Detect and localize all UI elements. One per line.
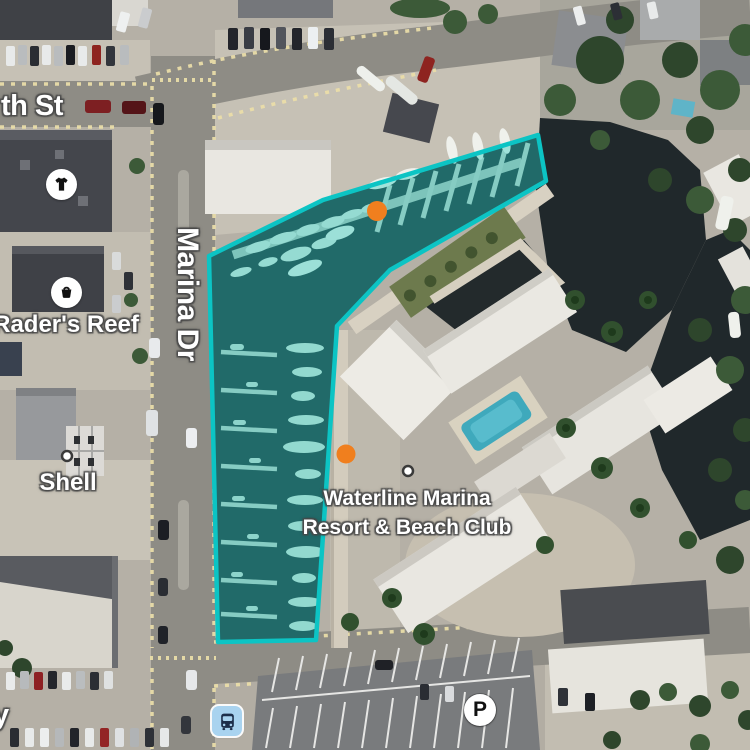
- street-label-partial-bottom: y: [0, 699, 9, 732]
- clothing-store-poi[interactable]: [46, 169, 77, 200]
- orange-marker-north[interactable]: [367, 201, 387, 221]
- bus-transit-stop[interactable]: [212, 706, 242, 736]
- poi-dot-resort[interactable]: [403, 466, 413, 476]
- parking-icon: P: [473, 698, 487, 722]
- satellite-map[interactable]: th St Marina Dr Rader's Reef Shell Water…: [0, 0, 750, 750]
- poi-label-raders-reef[interactable]: Rader's Reef: [0, 311, 166, 339]
- poi-label-waterline-resort[interactable]: Waterline Marina Resort & Beach Club: [257, 484, 557, 542]
- parking-poi[interactable]: P: [464, 694, 496, 726]
- shopping-poi[interactable]: [51, 277, 82, 308]
- basket-icon: [56, 282, 77, 303]
- street-label-th-st: th St: [1, 90, 63, 123]
- poi-label-waterline-line2: Resort & Beach Club: [257, 513, 557, 542]
- poi-label-shell[interactable]: Shell: [18, 469, 118, 497]
- orange-marker-south[interactable]: [337, 445, 356, 464]
- bus-icon: [218, 712, 237, 731]
- poi-label-waterline-line1: Waterline Marina: [257, 484, 557, 513]
- satellite-imagery: [0, 0, 750, 750]
- street-label-marina-dr: Marina Dr: [174, 208, 204, 380]
- poi-dot-shell[interactable]: [62, 451, 72, 461]
- tshirt-icon: [51, 174, 72, 195]
